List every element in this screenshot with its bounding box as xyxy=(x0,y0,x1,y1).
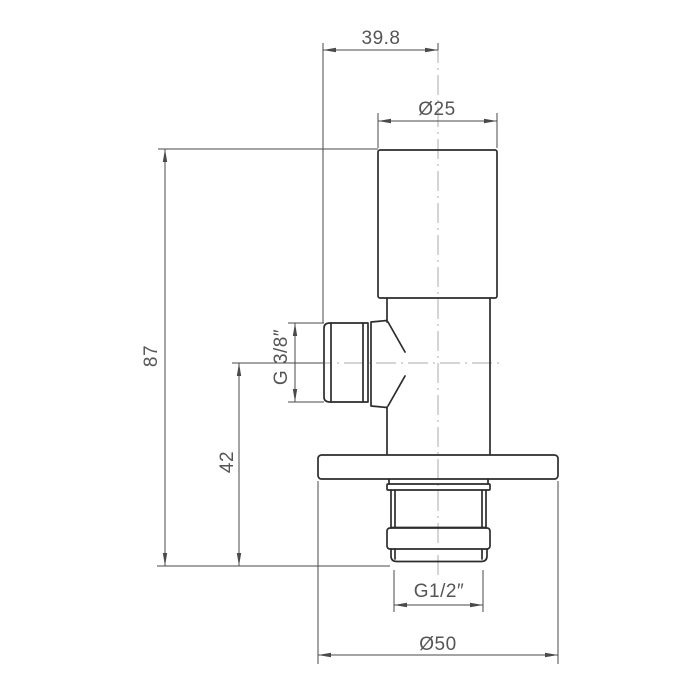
arrow-g12-right xyxy=(470,603,483,607)
angle-valve-technical-drawing: 39.8 Ø25 87 G 3/8″ 42 G1/2″ Ø50 xyxy=(0,0,700,700)
arrow-87-bottom xyxy=(163,553,167,566)
centerlines xyxy=(312,43,502,578)
arrow-39-8-right xyxy=(425,48,438,52)
side-port-cone-lines xyxy=(388,322,405,406)
label-cap-diameter: Ø25 xyxy=(418,99,455,120)
arrow-87-top xyxy=(163,149,167,162)
arrow-g38-top xyxy=(293,323,297,336)
dimension-lines xyxy=(165,50,558,655)
drawing-canvas: 39.8 Ø25 87 G 3/8″ 42 G1/2″ Ø50 xyxy=(0,0,700,700)
arrow-d50-right xyxy=(545,653,558,657)
label-bottom-thread: G1/2″ xyxy=(414,581,464,602)
arrow-39-8-left xyxy=(323,48,336,52)
bottom-tip xyxy=(391,549,487,562)
label-flange-diameter: Ø50 xyxy=(419,634,456,655)
label-port-axis-height: 42 xyxy=(217,451,238,473)
arrow-g12-left xyxy=(394,603,407,607)
arrow-d25-right xyxy=(484,119,497,123)
label-side-thread: G 3/8″ xyxy=(271,329,292,385)
arrow-d50-left xyxy=(318,653,331,657)
arrow-42-top xyxy=(237,363,241,376)
label-total-height: 87 xyxy=(141,345,162,367)
arrow-d25-left xyxy=(378,119,391,123)
arrow-g38-bottom xyxy=(293,389,297,402)
arrow-42-bottom xyxy=(237,553,241,566)
label-port-offset: 39.8 xyxy=(362,28,401,49)
side-port-adapter xyxy=(371,321,387,408)
extension-lines xyxy=(157,43,558,664)
